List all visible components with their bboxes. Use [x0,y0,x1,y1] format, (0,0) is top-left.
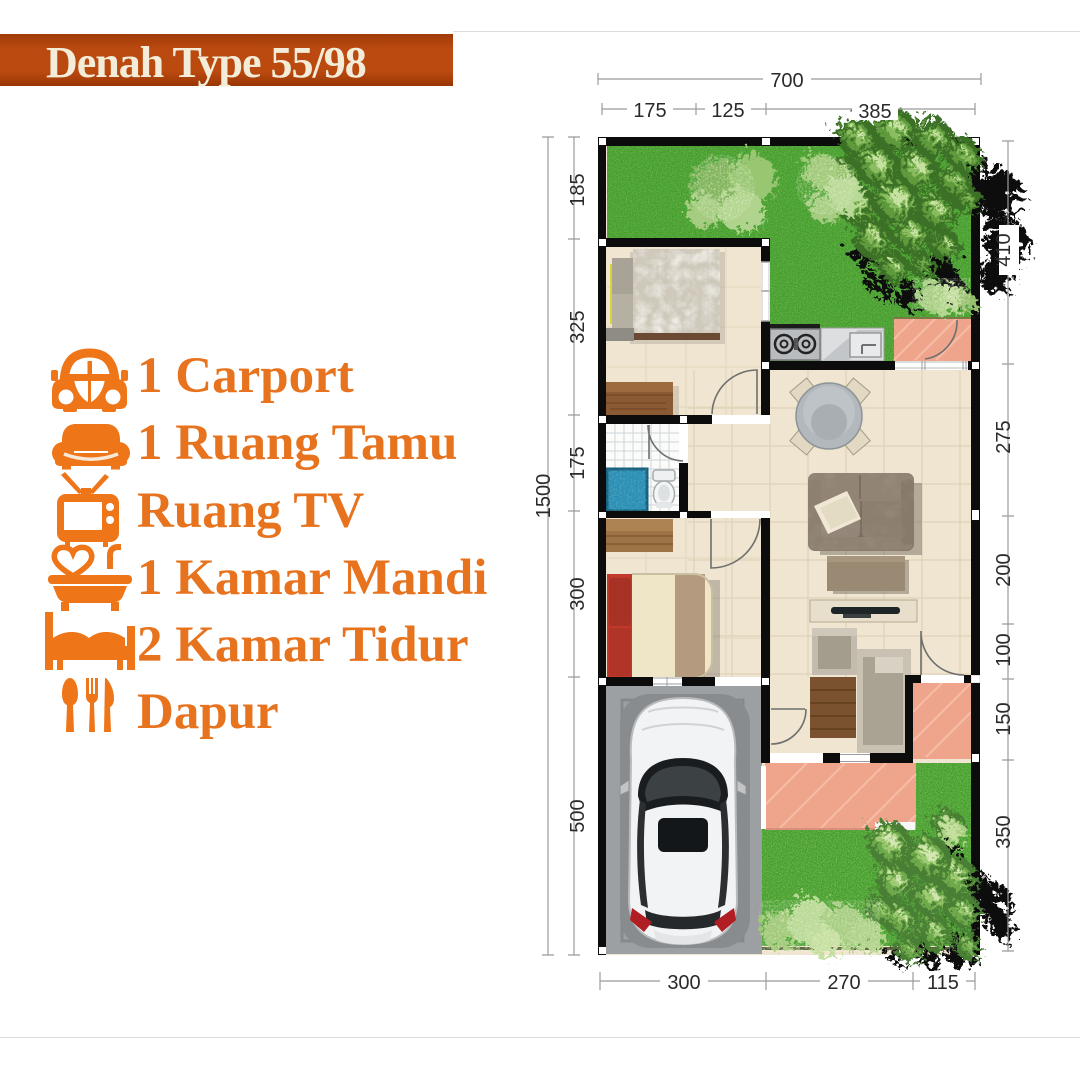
svg-text:300: 300 [567,577,589,610]
svg-text:175: 175 [633,100,666,122]
svg-text:300: 300 [667,972,700,994]
svg-text:700: 700 [770,70,803,92]
svg-text:1500: 1500 [533,474,555,519]
svg-text:115: 115 [927,972,959,994]
svg-text:410: 410 [993,233,1015,266]
svg-text:125: 125 [711,100,744,122]
svg-text:150: 150 [993,702,1015,735]
svg-text:500: 500 [567,799,589,832]
svg-text:325: 325 [567,310,589,343]
svg-text:350: 350 [993,815,1015,848]
svg-text:100: 100 [993,633,1015,666]
svg-text:200: 200 [993,553,1015,586]
svg-text:385: 385 [858,101,891,123]
svg-text:185: 185 [567,173,589,206]
svg-text:270: 270 [827,972,860,994]
svg-text:275: 275 [993,420,1015,453]
svg-text:175: 175 [567,446,589,479]
